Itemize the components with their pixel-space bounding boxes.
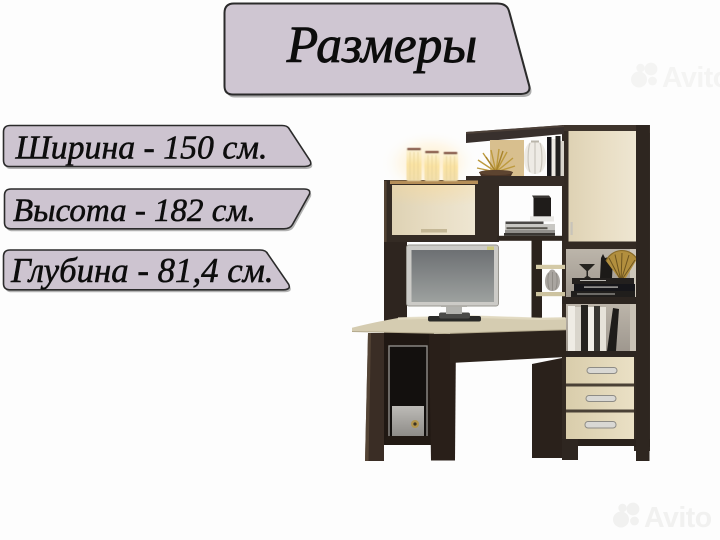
svg-text:Размеры: Размеры (286, 17, 477, 74)
svg-text:Глубина - 81,4 см.: Глубина - 81,4 см. (10, 251, 274, 290)
svg-text:Высота - 182 см.: Высота - 182 см. (13, 193, 256, 229)
svg-text:Avito: Avito (644, 502, 712, 534)
svg-text:Avito: Avito (662, 62, 720, 94)
svg-text:Ширина - 150 см.: Ширина - 150 см. (15, 130, 268, 167)
